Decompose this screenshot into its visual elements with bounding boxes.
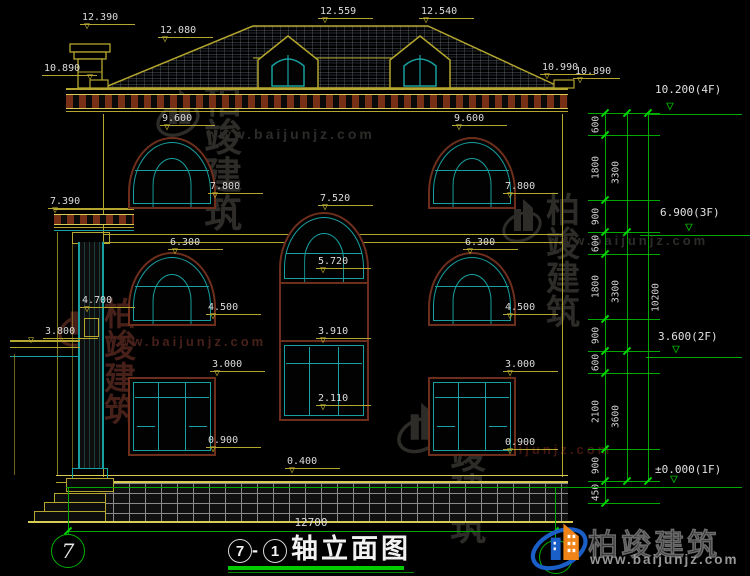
level-line xyxy=(640,235,750,236)
title-underline xyxy=(228,566,404,570)
dim-value: 10200 xyxy=(651,278,662,318)
elevation-marker: 12.080 xyxy=(158,25,213,38)
dim-chain-line xyxy=(605,113,606,503)
bay-eave xyxy=(10,340,80,357)
title-underline-thin xyxy=(228,572,414,573)
porch-column xyxy=(78,242,104,468)
window-3f-right xyxy=(428,137,516,209)
dim-value: 3300 xyxy=(611,272,622,312)
window-3f-left xyxy=(128,137,216,209)
dim-chain-line xyxy=(627,113,628,481)
dim-value: 3600 xyxy=(611,397,622,437)
title-circle-7: 7 xyxy=(228,539,252,563)
porch-cyan-line xyxy=(54,230,134,231)
grid-bubble-7: 7 xyxy=(51,534,85,568)
cad-elevation-drawing: 柏竣建筑 www.baijunjz.com 柏竣建筑 www.baijunjz.… xyxy=(0,0,750,576)
level-line xyxy=(646,357,742,358)
elevation-marker: 2.110 xyxy=(316,393,371,406)
elevation-marker: 6.300 xyxy=(168,237,223,250)
porch-dentil-band xyxy=(54,214,134,225)
brand-url: www.baijunjz.com xyxy=(590,552,739,567)
wall-edge-right xyxy=(562,114,563,477)
dim-value: 600 xyxy=(591,224,602,264)
elevation-marker: 0.900 xyxy=(503,437,558,450)
elevation-marker: 4.700 xyxy=(80,295,135,308)
elevation-marker: 3.800 xyxy=(43,326,98,339)
porch-cornice-line xyxy=(54,227,134,228)
dim-value: 2100 xyxy=(591,392,602,432)
bay-eave-line xyxy=(10,347,80,348)
elevation-marker: 3.000 xyxy=(210,359,265,372)
dim-value: 600 xyxy=(591,343,602,383)
bottom-dim-line xyxy=(68,531,555,532)
dim-value: 1800 xyxy=(591,148,602,188)
elevation-marker: 3.000 xyxy=(503,359,558,372)
level-label: 6.900(3F) xyxy=(660,206,720,219)
elevation-marker: 9.600 xyxy=(452,113,507,126)
cornice-bottom-line xyxy=(66,111,568,112)
ground-level-line xyxy=(66,487,742,488)
eave-return-right xyxy=(554,80,574,88)
elevation-marker: 4.500 xyxy=(503,302,558,315)
level-label: 3.600(2F) xyxy=(658,330,718,343)
elevation-marker: 0.900 xyxy=(206,435,261,448)
title-circle-1: 1 xyxy=(263,539,287,563)
level-triangle-icon xyxy=(685,221,693,234)
level-triangle-icon xyxy=(672,343,680,356)
elevation-marker: 3.910 xyxy=(316,326,371,339)
level-label: 10.200(4F) xyxy=(655,83,721,96)
elevation-marker: 5.720 xyxy=(316,256,371,269)
level-triangle-icon xyxy=(666,100,674,113)
elevation-marker: 9.600 xyxy=(160,113,215,126)
bottom-dim-value: 12700 xyxy=(278,516,344,529)
dim-value: 1800 xyxy=(591,267,602,307)
elevation-marker: 7.800 xyxy=(208,181,263,194)
dim-value: 3300 xyxy=(611,153,622,193)
elevation-marker: 7.390 xyxy=(48,196,103,209)
elevation-marker: 10.890 xyxy=(573,66,620,79)
dim-value: 450 xyxy=(591,473,602,513)
porch-roof xyxy=(54,208,134,231)
elevation-marker: 7.800 xyxy=(503,181,558,194)
brand-logo-icon xyxy=(528,518,596,574)
elevation-marker: 6.300 xyxy=(463,237,518,250)
drawing-title: 轴立面图 xyxy=(291,536,411,563)
elevation-marker: 4.500 xyxy=(206,302,261,315)
window-1f-left xyxy=(128,377,216,456)
elevation-marker: 0.400 xyxy=(285,456,340,469)
watermark-url: www.baijunjz.com xyxy=(206,126,375,142)
watermark-url: www.baijunjz.com xyxy=(106,334,266,349)
elevation-marker: 7.520 xyxy=(318,193,373,206)
bay-wall-line xyxy=(14,354,15,475)
elevation-marker: 12.559 xyxy=(318,6,373,19)
elevation-marker: 12.390 xyxy=(80,12,135,25)
column-base-lower xyxy=(66,478,114,492)
level-label: ±0.000(1F) xyxy=(655,463,721,476)
title-separator: - xyxy=(252,541,258,559)
dentil-band xyxy=(66,94,568,109)
level-line xyxy=(646,114,742,115)
elevation-marker: 10.890 xyxy=(42,63,97,76)
dim-value: 600 xyxy=(591,105,602,145)
elevation-marker: 12.540 xyxy=(419,6,474,19)
main-cornice xyxy=(66,88,568,112)
dim-chain-line xyxy=(648,113,649,481)
window-2f-left xyxy=(128,252,216,326)
